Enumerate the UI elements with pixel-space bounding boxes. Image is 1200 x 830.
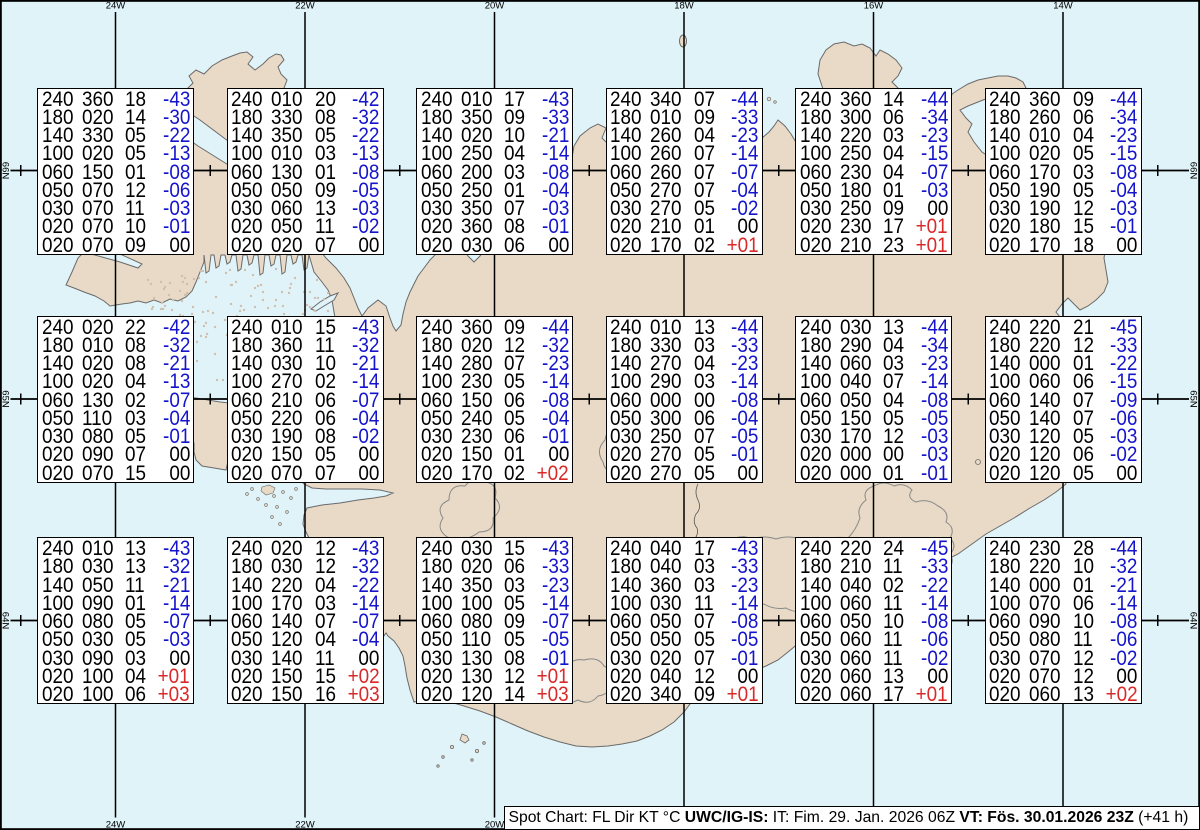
svg-text:16W: 16W <box>864 1 884 12</box>
svg-text:66N: 66N <box>1188 162 1199 180</box>
svg-text:64N: 64N <box>1188 612 1199 630</box>
svg-text:20W: 20W <box>485 1 505 12</box>
svg-text:14W: 14W <box>1053 1 1073 12</box>
svg-text:22W: 22W <box>295 1 315 12</box>
svg-text:24W: 24W <box>106 1 126 12</box>
svg-text:18W: 18W <box>674 1 694 12</box>
svg-text:65N: 65N <box>1188 390 1199 408</box>
